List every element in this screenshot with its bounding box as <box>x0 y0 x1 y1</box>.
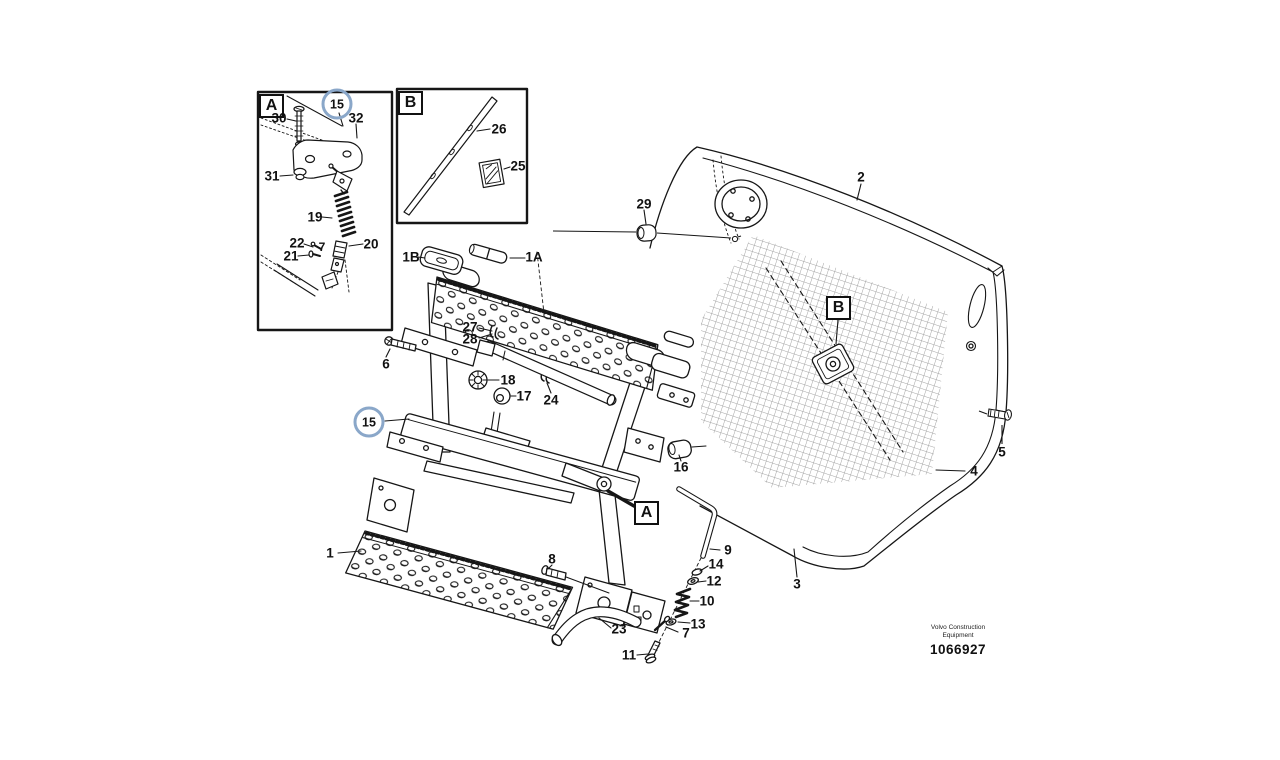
callout-23: 23 <box>611 622 626 636</box>
callout-1: 1 <box>326 546 334 560</box>
document-number: 1066927 <box>894 642 1022 657</box>
callout-29: 29 <box>636 197 651 211</box>
callout-14: 14 <box>708 557 723 571</box>
callout-4: 4 <box>970 464 978 478</box>
callout-31: 31 <box>264 169 279 183</box>
callout-5: 5 <box>998 445 1006 459</box>
callout-18: 18 <box>500 373 515 387</box>
callout-22: 22 <box>289 236 304 250</box>
left-side-plate <box>367 478 414 532</box>
highlight-ring-main: 15 <box>354 407 385 438</box>
lower-tread <box>346 531 573 629</box>
washer-18 <box>469 371 487 389</box>
callout-10: 10 <box>699 594 714 608</box>
callout-7-inset: 7 <box>319 241 326 253</box>
callout-24: 24 <box>543 393 558 407</box>
callout-12: 12 <box>706 574 721 588</box>
spring-10 <box>675 589 690 617</box>
inset-a <box>258 92 392 330</box>
brand-name: Volvo Construction Equipment <box>894 624 1022 640</box>
callout-21: 21 <box>283 249 298 263</box>
callout-32: 32 <box>348 111 363 125</box>
callout-1b: 1B <box>402 250 419 264</box>
parts-diagram-page: A B A B 15 15 1 1A 1B 2 3 4 5 6 7 8 9 10… <box>0 0 1280 760</box>
callout-26: 26 <box>491 122 506 136</box>
callout-6: 6 <box>382 357 390 371</box>
panel-round-feature <box>715 180 767 228</box>
callout-16: 16 <box>673 460 688 474</box>
pin-1a <box>468 243 508 264</box>
callout-19: 19 <box>307 210 322 224</box>
callout-8: 8 <box>548 552 556 566</box>
callout-30: 30 <box>271 111 286 125</box>
callout-2: 2 <box>857 170 865 184</box>
callout-28: 28 <box>462 332 477 346</box>
footer: Volvo Construction Equipment 1066927 <box>894 624 1022 657</box>
callout-1a: 1A <box>525 250 542 264</box>
pad-1b <box>419 245 465 276</box>
inset-b-letter: B <box>398 91 423 115</box>
callout-20: 20 <box>363 237 378 251</box>
diagram-canvas <box>0 0 1280 760</box>
detail-marker-b: B <box>826 296 851 320</box>
grommet-17 <box>494 388 510 404</box>
callout-7: 7 <box>682 626 690 640</box>
callout-17: 17 <box>516 389 531 403</box>
callout-13: 13 <box>690 617 705 631</box>
plate-25 <box>479 159 504 187</box>
callout-11: 11 <box>622 648 636 662</box>
callout-9: 9 <box>724 543 732 557</box>
callout-3: 3 <box>793 577 801 591</box>
callout-25: 25 <box>510 159 525 173</box>
detail-marker-a: A <box>634 501 659 525</box>
nut-31 <box>294 168 306 179</box>
